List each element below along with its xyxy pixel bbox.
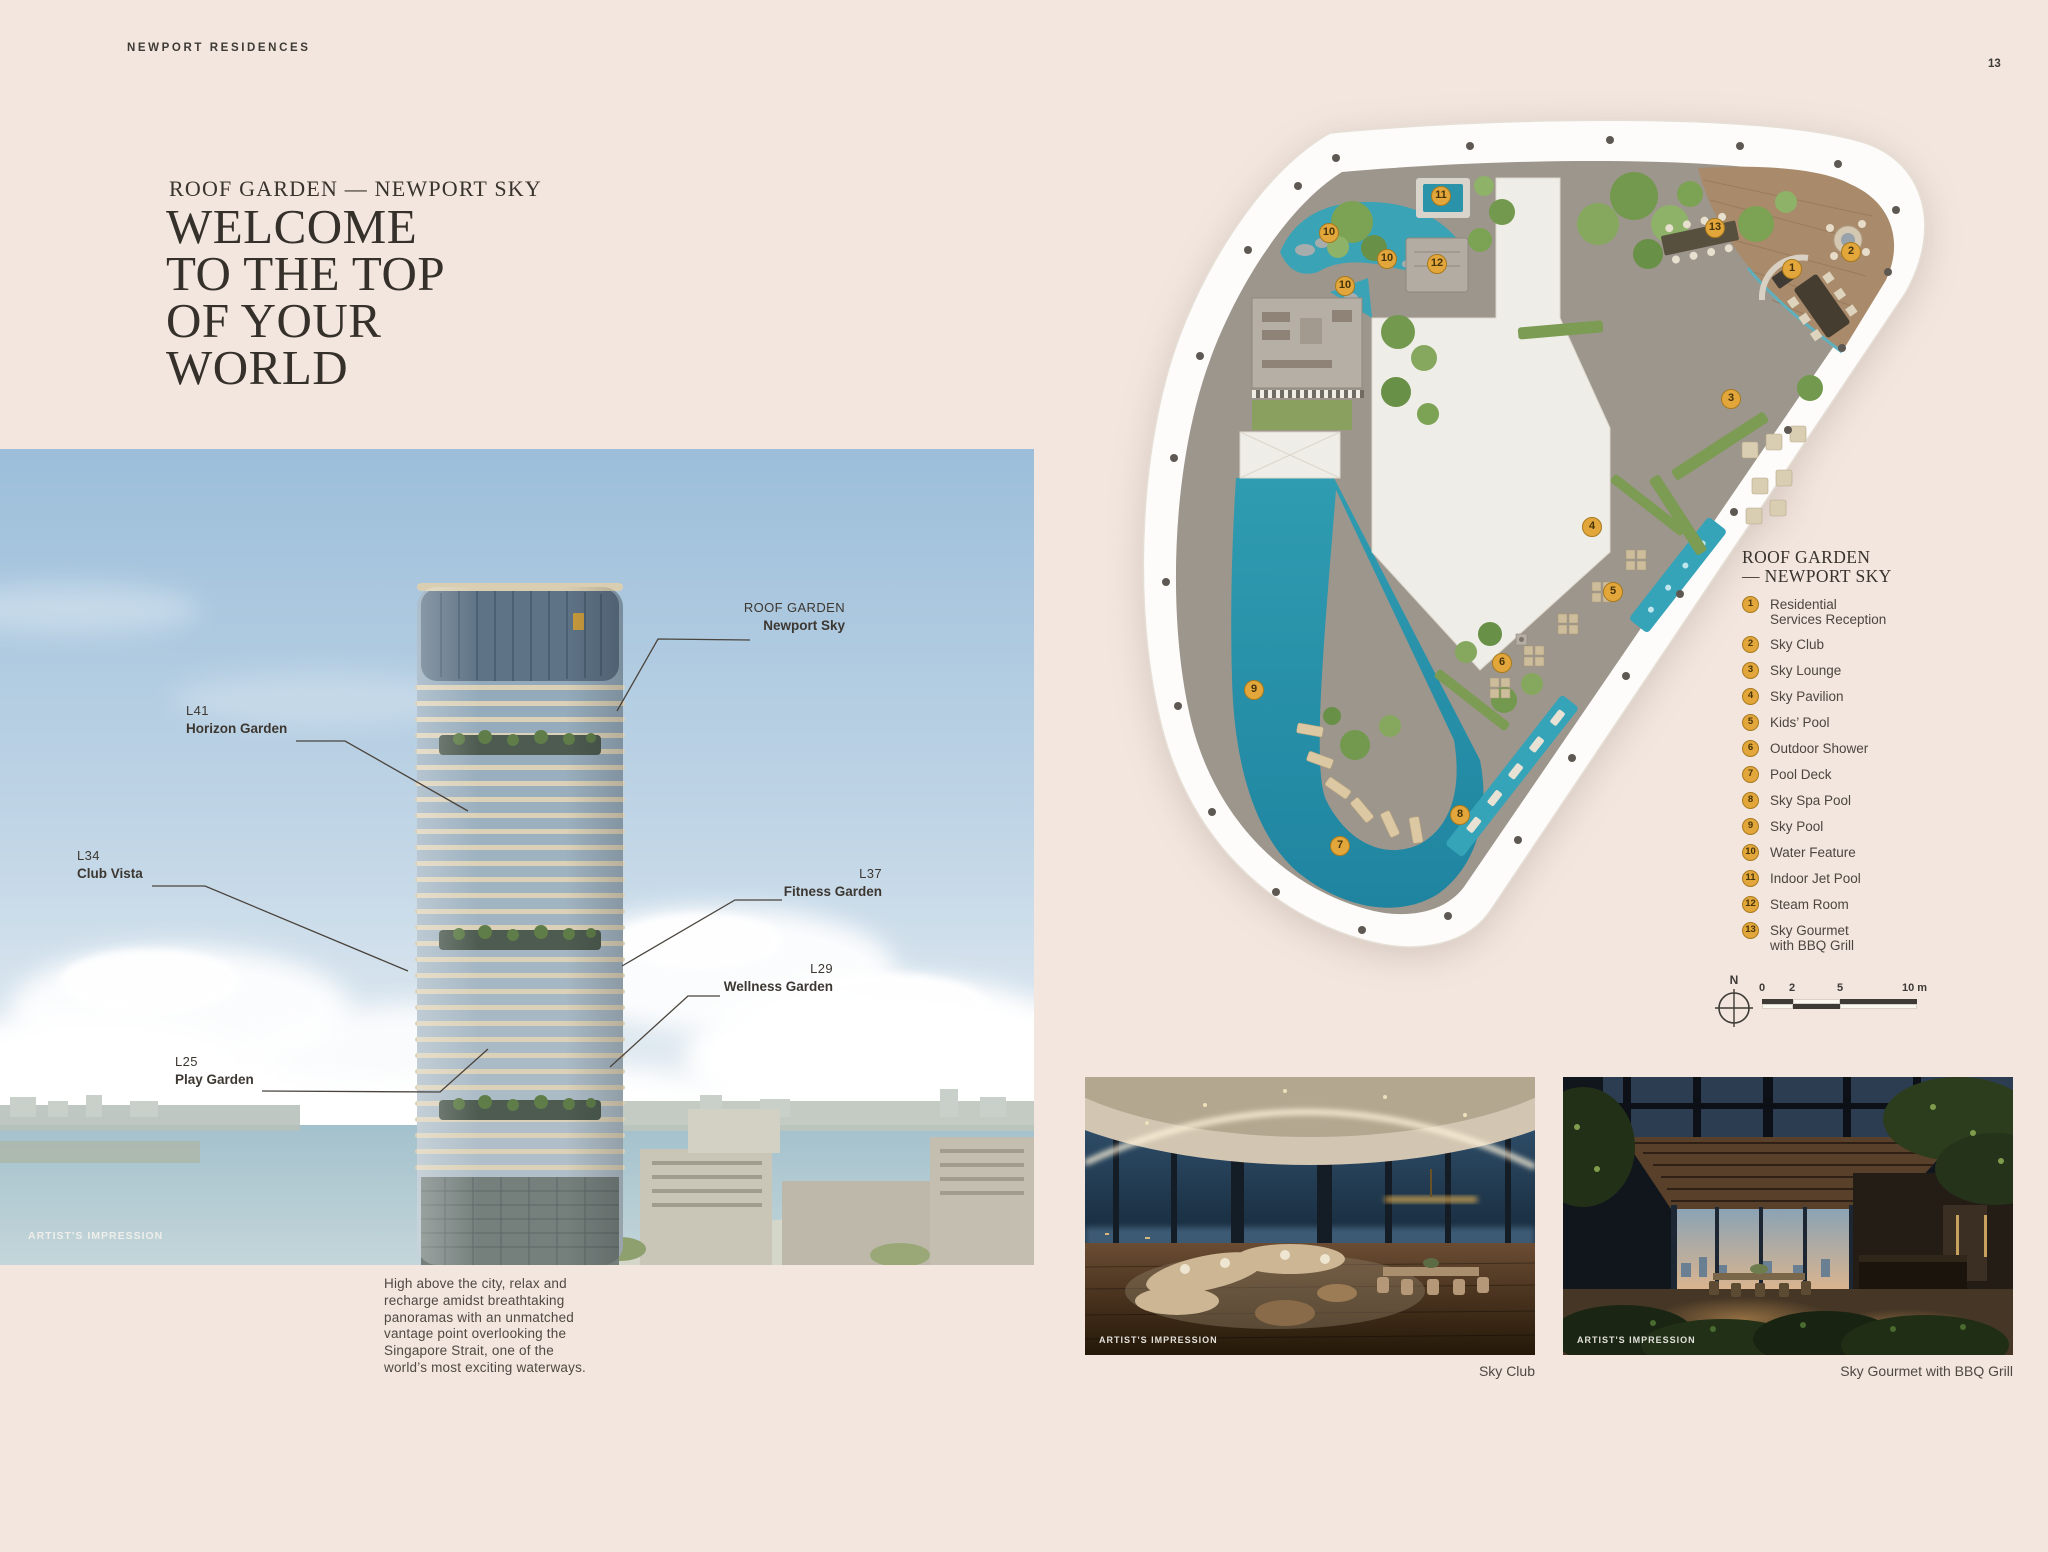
callout-level: L41 — [186, 702, 287, 720]
tower-illustration: ARTIST'S IMPRESSION — [0, 449, 1034, 1265]
legend-title: ROOF GARDEN — NEWPORT SKY — [1742, 548, 1927, 586]
callout-name: Play Garden — [175, 1071, 254, 1090]
plan-marker: 1 — [1782, 259, 1802, 279]
legend-item: 6Outdoor Shower — [1742, 740, 1927, 757]
title-line: OF YOUR — [166, 297, 445, 344]
tower — [415, 583, 625, 1265]
legend-item: 9Sky Pool — [1742, 818, 1927, 835]
outdoor-shower — [1516, 634, 1527, 645]
plan-marker: 10 — [1319, 223, 1339, 243]
plan-marker: 12 — [1427, 254, 1447, 274]
legend-number-badge: 12 — [1742, 896, 1759, 913]
sky-club-caption: Sky Club — [1335, 1363, 1535, 1379]
sky-gourmet-illustration: ARTIST'S IMPRESSION — [1563, 1077, 2013, 1355]
brochure-page: NEWPORT RESIDENCES 13 ROOF GARDEN — NEWP… — [0, 0, 2048, 1552]
artist-impression-label: ARTIST'S IMPRESSION — [28, 1230, 163, 1242]
callout-l37: L37 Fitness Garden — [680, 865, 882, 902]
page-title: WELCOME TO THE TOP OF YOUR WORLD — [166, 203, 445, 391]
callout-name: Horizon Garden — [186, 720, 287, 739]
legend-item: 2Sky Club — [1742, 636, 1927, 653]
plan-marker: 11 — [1431, 186, 1451, 206]
title-line: TO THE TOP — [166, 250, 445, 297]
plan-marker: 10 — [1335, 276, 1355, 296]
plan-marker: 9 — [1244, 680, 1264, 700]
plan-legend: ROOF GARDEN — NEWPORT SKY 1Residential S… — [1742, 548, 1927, 962]
plan-marker: 6 — [1492, 653, 1512, 673]
legend-item: 10Water Feature — [1742, 844, 1927, 861]
legend-item: 5Kids’ Pool — [1742, 714, 1927, 731]
sky-club-illustration: ARTIST'S IMPRESSION — [1085, 1077, 1535, 1355]
sky-club-photo: ARTIST'S IMPRESSION — [1085, 1077, 1535, 1360]
sky-gourmet-photo: ARTIST'S IMPRESSION — [1563, 1077, 2013, 1360]
legend-item: 7Pool Deck — [1742, 766, 1927, 783]
legend-item: 13Sky Gourmet with BBQ Grill — [1742, 922, 1927, 953]
plan-marker: 4 — [1582, 517, 1602, 537]
plan-marker: 2 — [1841, 242, 1861, 262]
brand-header: NEWPORT RESIDENCES — [127, 42, 311, 54]
legend-item: 3Sky Lounge — [1742, 662, 1927, 679]
legend-item: 11Indoor Jet Pool — [1742, 870, 1927, 887]
callout-l34: L34 Club Vista — [77, 847, 143, 884]
legend-number-badge: 6 — [1742, 740, 1759, 757]
callout-level: ROOF GARDEN — [610, 599, 845, 617]
page-number: 13 — [1988, 58, 2001, 70]
legend-item: 12Steam Room — [1742, 896, 1927, 913]
callout-l25: L25 Play Garden — [175, 1053, 254, 1090]
callout-level: L34 — [77, 847, 143, 865]
legend-number-badge: 5 — [1742, 714, 1759, 731]
title-line: WELCOME — [166, 203, 445, 250]
legend-item: 8Sky Spa Pool — [1742, 792, 1927, 809]
sky-gourmet-caption: Sky Gourmet with BBQ Grill — [1713, 1363, 2013, 1379]
plan-marker: 13 — [1705, 218, 1725, 238]
plan-marker: 5 — [1603, 582, 1623, 602]
legend-number-badge: 3 — [1742, 662, 1759, 679]
compass-icon: N — [1712, 972, 1756, 1028]
legend-item: 1Residential Services Reception — [1742, 596, 1927, 627]
callout-name: Fitness Garden — [680, 883, 882, 902]
legend-number-badge: 10 — [1742, 844, 1759, 861]
callout-name: Newport Sky — [610, 617, 845, 636]
callout-name: Wellness Garden — [631, 978, 833, 997]
callout-level: L37 — [680, 865, 882, 883]
callout-l29: L29 Wellness Garden — [631, 960, 833, 997]
tower-photo: ARTIST'S IMPRESSION ROOF GARDEN Newport … — [0, 449, 1034, 1265]
callout-l41: L41 Horizon Garden — [186, 702, 287, 739]
artist-impression-label: ARTIST'S IMPRESSION — [1099, 1335, 1218, 1345]
callout-level: L29 — [631, 960, 833, 978]
legend-number-badge: 13 — [1742, 922, 1759, 939]
artist-impression-label: ARTIST'S IMPRESSION — [1577, 1335, 1696, 1345]
plan-marker: 10 — [1377, 249, 1397, 269]
callout-name: Club Vista — [77, 865, 143, 884]
legend-number-badge: 2 — [1742, 636, 1759, 653]
legend-number-badge: 7 — [1742, 766, 1759, 783]
legend-number-badge: 8 — [1742, 792, 1759, 809]
intro-paragraph: High above the city, relax and recharge … — [384, 1276, 589, 1377]
title-line: WORLD — [166, 344, 445, 391]
callout-roof-garden: ROOF GARDEN Newport Sky — [610, 599, 845, 636]
plan-marker: 3 — [1721, 389, 1741, 409]
callout-level: L25 — [175, 1053, 254, 1071]
legend-number-badge: 11 — [1742, 870, 1759, 887]
plan-marker: 8 — [1450, 805, 1470, 825]
legend-number-badge: 4 — [1742, 688, 1759, 705]
scale-bar: 0 2 5 10 m — [1762, 982, 1932, 1018]
legend-number-badge: 1 — [1742, 596, 1759, 613]
svg-text:N: N — [1730, 973, 1739, 987]
legend-number-badge: 9 — [1742, 818, 1759, 835]
legend-item: 4Sky Pavilion — [1742, 688, 1927, 705]
plan-marker: 7 — [1330, 836, 1350, 856]
